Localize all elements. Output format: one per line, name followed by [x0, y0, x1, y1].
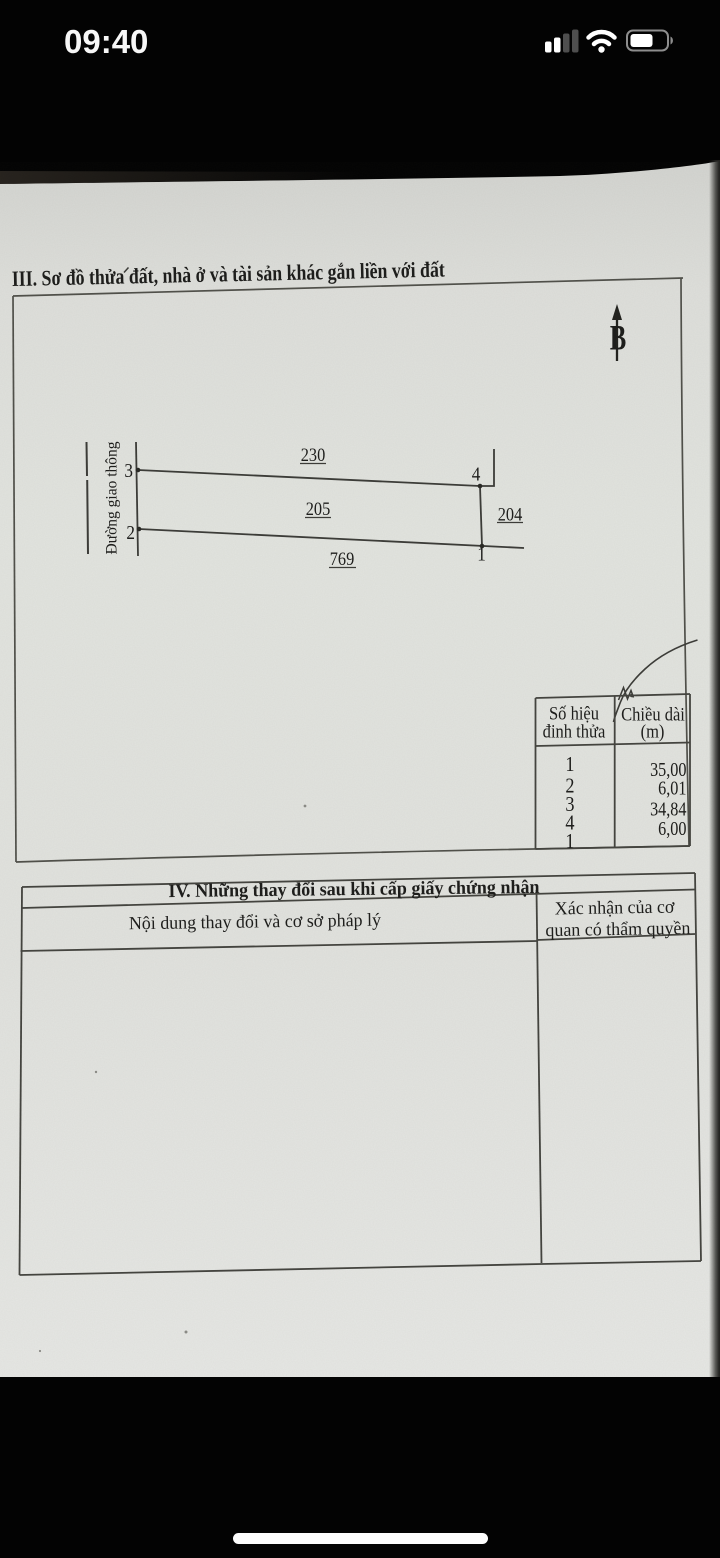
svg-text:205: 205	[306, 498, 331, 519]
svg-text:IV. Những thay đổi sau khi cấp: IV. Những thay đổi sau khi cấp giấy chứn…	[168, 876, 540, 902]
svg-text:1: 1	[565, 830, 574, 853]
svg-text:2: 2	[126, 522, 135, 545]
svg-text:(m): (m)	[641, 720, 665, 742]
svg-text:Đường giao thông: Đường giao thông	[104, 441, 121, 554]
svg-text:Xác nhận của cơ: Xác nhận của cơ	[555, 896, 675, 918]
svg-text:09:40: 09:40	[64, 23, 148, 60]
svg-text:đinh thửa: đinh thửa	[543, 720, 606, 741]
svg-text:6,00: 6,00	[658, 817, 686, 839]
svg-text:quan có thẩm quyền: quan có thẩm quyền	[545, 918, 690, 941]
svg-text:1: 1	[565, 753, 574, 776]
svg-text:Nội dung thay đổi và cơ sở phá: Nội dung thay đổi và cơ sở pháp lý	[129, 909, 382, 933]
svg-text:230: 230	[301, 444, 326, 465]
svg-text:6,01: 6,01	[658, 777, 686, 799]
svg-text:3: 3	[124, 460, 133, 483]
svg-text:769: 769	[330, 548, 355, 569]
svg-text:4: 4	[472, 463, 481, 486]
svg-text:204: 204	[498, 503, 523, 524]
svg-text:B: B	[610, 318, 626, 358]
svg-text:1: 1	[477, 543, 486, 566]
